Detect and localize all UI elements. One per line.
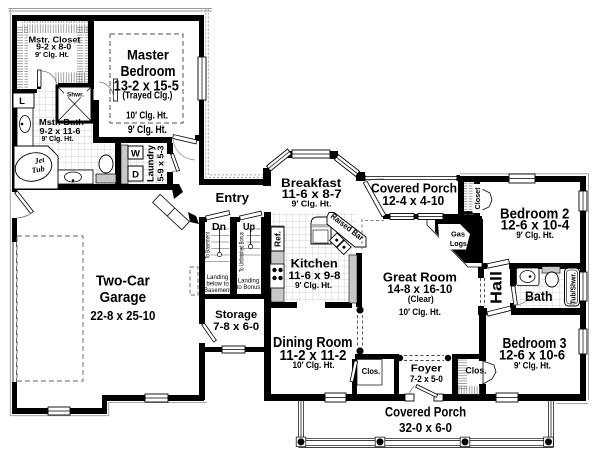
svg-text:Closet: Closet xyxy=(473,187,482,210)
svg-text:Clos.: Clos. xyxy=(362,366,381,376)
svg-text:9′ Clg. Ht.: 9′ Clg. Ht. xyxy=(42,134,74,143)
svg-text:9′ Clg. Ht.: 9′ Clg. Ht. xyxy=(292,199,332,208)
svg-text:Hall: Hall xyxy=(489,271,506,304)
svg-text:Master: Master xyxy=(127,47,169,63)
svg-text:22-8 x 25-10: 22-8 x 25-10 xyxy=(90,308,155,323)
svg-text:Tub/Shwr.: Tub/Shwr. xyxy=(569,272,578,304)
svg-text:Ref.: Ref. xyxy=(274,231,283,247)
svg-text:5-9 x 5-3: 5-9 x 5-3 xyxy=(156,145,166,181)
svg-text:Foyer: Foyer xyxy=(411,364,442,375)
svg-text:9′ Clg. Ht.: 9′ Clg. Ht. xyxy=(516,230,554,240)
svg-text:Gas: Gas xyxy=(451,230,465,239)
svg-text:Landing: Landing xyxy=(238,279,259,285)
svg-text:Two-Car: Two-Car xyxy=(96,273,150,289)
svg-text:Bath: Bath xyxy=(525,288,553,304)
svg-text:To Unfinished Bonus: To Unfinished Bonus xyxy=(240,232,246,272)
svg-text:(Clear): (Clear) xyxy=(408,294,434,304)
svg-text:12-4 x 4-10: 12-4 x 4-10 xyxy=(382,193,444,208)
svg-text:Covered Porch: Covered Porch xyxy=(385,403,466,419)
svg-text:D: D xyxy=(132,170,139,181)
svg-text:9′ Clg. Ht.: 9′ Clg. Ht. xyxy=(35,50,69,59)
svg-text:9′ Clg. Ht.: 9′ Clg. Ht. xyxy=(128,124,167,136)
svg-text:Clos.: Clos. xyxy=(466,366,487,376)
svg-text:Entry: Entry xyxy=(216,190,250,205)
svg-text:Landing: Landing xyxy=(207,275,228,281)
svg-text:below to: below to xyxy=(206,282,229,288)
svg-text:(Trayed Clg.): (Trayed Clg.) xyxy=(122,90,172,101)
svg-text:W: W xyxy=(131,149,140,160)
svg-text:Logs: Logs xyxy=(450,239,467,248)
svg-text:9′ Clg. Ht.: 9′ Clg. Ht. xyxy=(295,281,332,290)
svg-text:Dn: Dn xyxy=(212,221,226,233)
svg-text:7-2 x 5-0: 7-2 x 5-0 xyxy=(410,374,443,385)
svg-text:L: L xyxy=(19,96,25,107)
svg-text:Breakfast: Breakfast xyxy=(281,176,341,190)
svg-text:Kitchen: Kitchen xyxy=(291,257,338,271)
svg-text:10′ Clg. Ht.: 10′ Clg. Ht. xyxy=(126,111,168,122)
svg-text:To Basement: To Basement xyxy=(205,232,212,259)
svg-text:7-8 x 6-0: 7-8 x 6-0 xyxy=(213,321,259,333)
svg-text:10′ Clg. Ht.: 10′ Clg. Ht. xyxy=(293,360,335,370)
svg-text:Up: Up xyxy=(243,221,255,233)
svg-text:Garage: Garage xyxy=(100,290,147,306)
svg-text:9′ Clg. Ht.: 9′ Clg. Ht. xyxy=(514,361,551,371)
svg-text:Basement: Basement xyxy=(204,288,231,294)
svg-text:to Bonus: to Bonus xyxy=(237,285,261,291)
svg-text:Storage: Storage xyxy=(215,309,257,321)
svg-text:32-0 x 6-0: 32-0 x 6-0 xyxy=(399,420,452,435)
svg-text:Shwr.: Shwr. xyxy=(67,92,84,99)
svg-text:10′ Clg. Ht.: 10′ Clg. Ht. xyxy=(399,307,441,318)
